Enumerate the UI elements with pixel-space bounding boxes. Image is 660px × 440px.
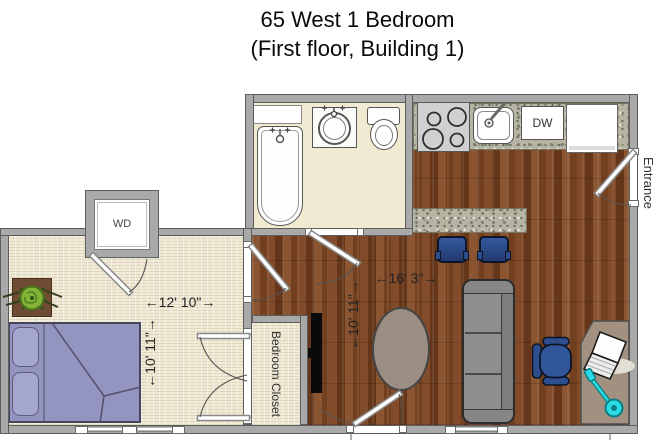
stove-burners [423,108,466,149]
patio-outline [351,434,610,440]
bedroom-closet-label: Bedroom Closet [269,326,283,422]
dimension-living-width: ←16' 3"→ [346,270,466,286]
dimension-bedroom-width: ←12' 10"→ [120,294,240,310]
dimension-living-depth: ←10' 11"→ [345,260,361,370]
dimension-bedroom-depth: ←10' 11"→ [142,293,158,413]
bathtub-faucet-icon [270,128,290,143]
bathroom-faucet-icon [322,106,345,117]
kitchen-faucet-icon [485,104,504,127]
plan-details-overlay [0,0,660,440]
floor-plan-page: 65 West 1 Bedroom (First floor, Building… [0,0,660,440]
bed-blanket-fold [44,323,141,423]
entrance-label: Entrance [642,153,656,213]
office-chair [533,338,572,386]
plant-icon [3,287,62,310]
